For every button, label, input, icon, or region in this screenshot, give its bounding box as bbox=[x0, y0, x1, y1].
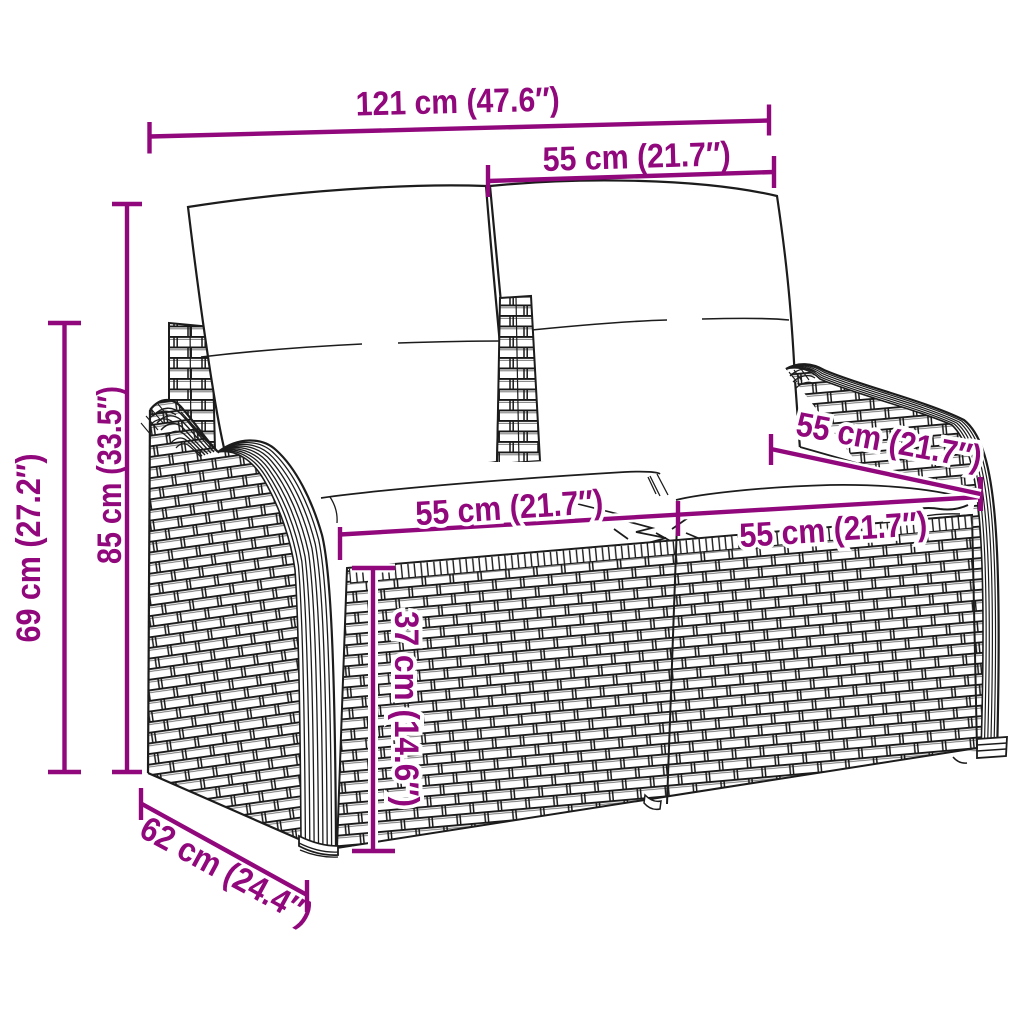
svg-text:55 cm (21.7″): 55 cm (21.7″) bbox=[542, 135, 731, 179]
svg-text:69 cm (27.2″): 69 cm (27.2″) bbox=[10, 454, 48, 643]
svg-text:85 cm (33.5″): 85 cm (33.5″) bbox=[91, 386, 129, 564]
svg-text:37 cm (14.6″): 37 cm (14.6″) bbox=[387, 611, 425, 807]
svg-text:121 cm (47.6″): 121 cm (47.6″) bbox=[355, 81, 560, 124]
